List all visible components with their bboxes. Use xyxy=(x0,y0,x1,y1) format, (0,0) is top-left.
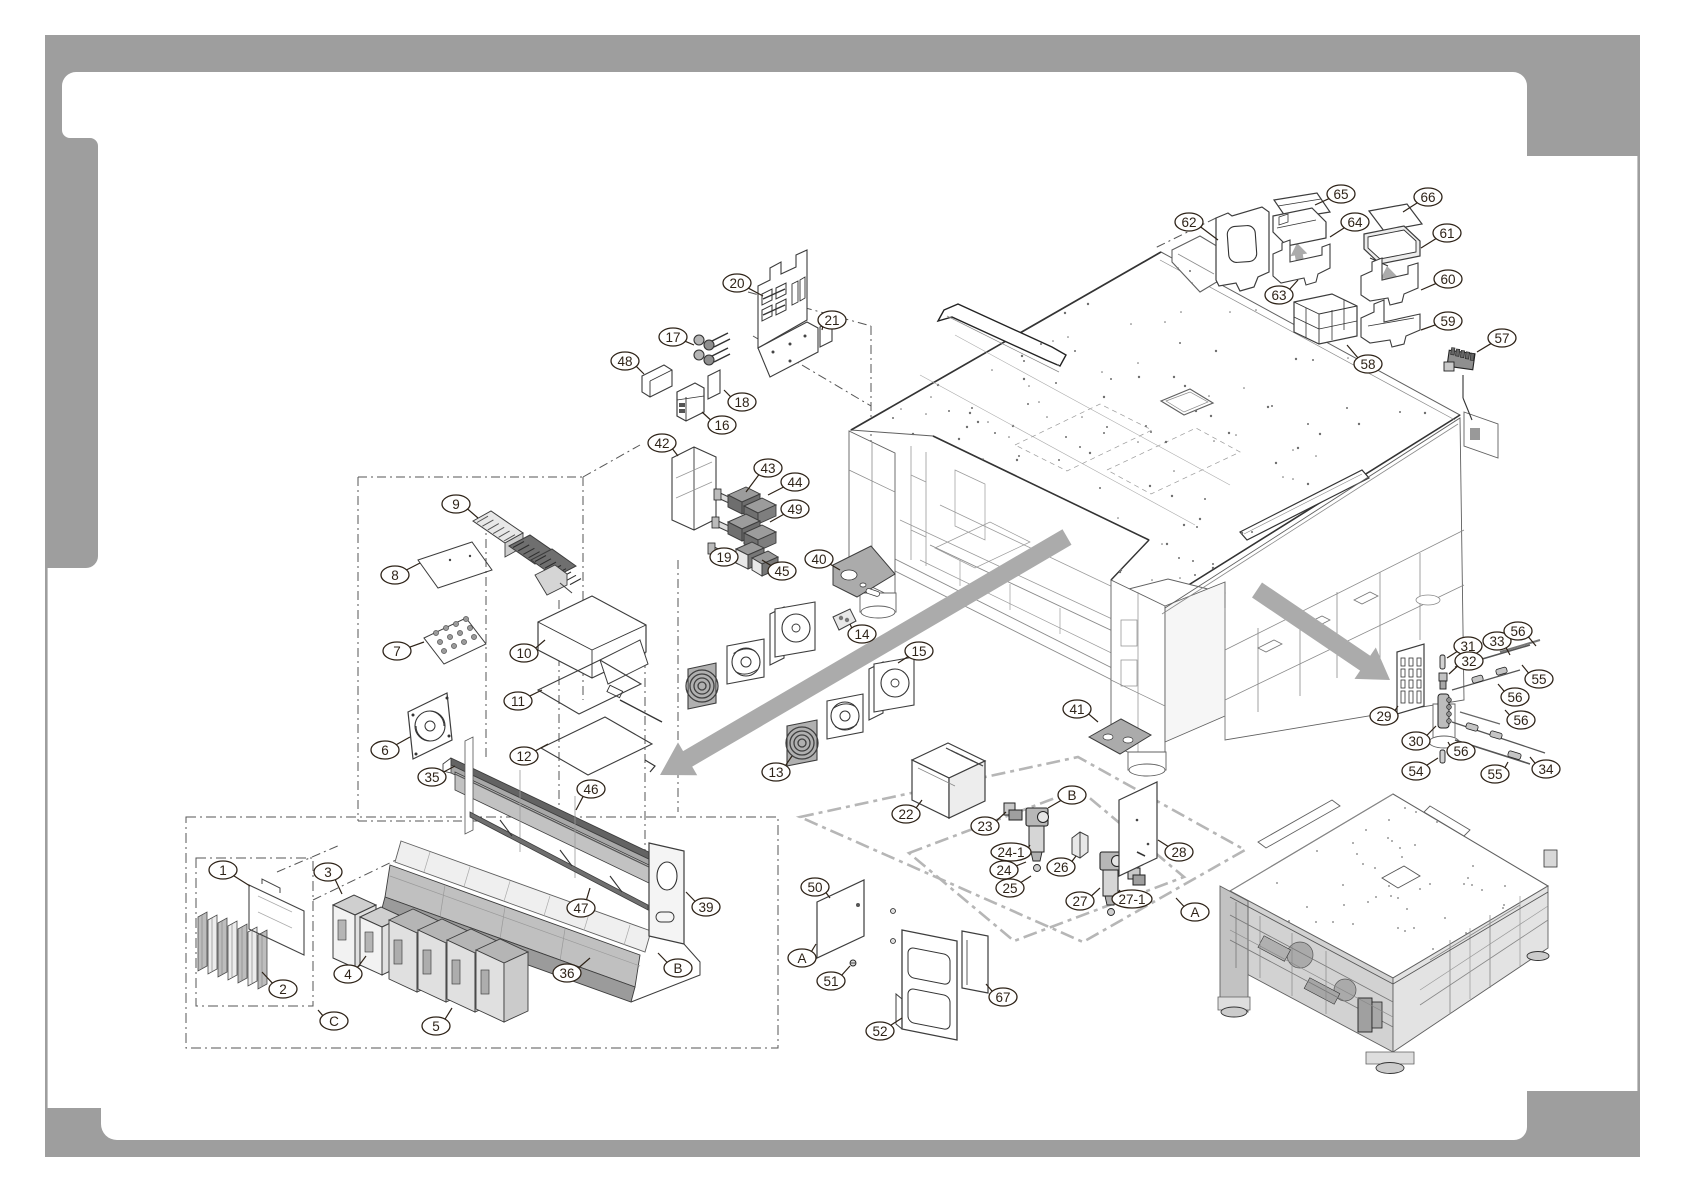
svg-text:62: 62 xyxy=(1181,215,1196,230)
svg-text:55: 55 xyxy=(1531,672,1546,687)
svg-text:11: 11 xyxy=(511,694,525,709)
svg-text:27: 27 xyxy=(1072,894,1087,909)
svg-text:43: 43 xyxy=(760,461,775,476)
svg-text:47: 47 xyxy=(573,901,588,916)
svg-text:39: 39 xyxy=(698,900,713,915)
svg-text:51: 51 xyxy=(823,974,838,989)
svg-text:2: 2 xyxy=(279,982,287,997)
svg-text:24-1: 24-1 xyxy=(997,845,1024,860)
svg-text:64: 64 xyxy=(1347,215,1363,230)
svg-text:56: 56 xyxy=(1453,744,1468,759)
svg-text:7: 7 xyxy=(393,644,401,659)
svg-text:56: 56 xyxy=(1513,713,1528,728)
svg-text:17: 17 xyxy=(665,330,680,345)
svg-text:61: 61 xyxy=(1439,226,1454,241)
svg-text:45: 45 xyxy=(774,564,789,579)
svg-text:25: 25 xyxy=(1002,881,1017,896)
svg-text:3: 3 xyxy=(324,865,332,880)
svg-text:15: 15 xyxy=(911,644,926,659)
svg-text:48: 48 xyxy=(617,354,632,369)
svg-text:23: 23 xyxy=(977,819,992,834)
svg-text:B: B xyxy=(673,961,682,976)
svg-text:6: 6 xyxy=(381,743,389,758)
svg-text:14: 14 xyxy=(854,627,870,642)
svg-text:54: 54 xyxy=(1408,764,1424,779)
svg-text:44: 44 xyxy=(787,475,803,490)
svg-text:A: A xyxy=(1190,905,1199,920)
svg-text:12: 12 xyxy=(516,749,531,764)
svg-text:66: 66 xyxy=(1420,190,1435,205)
svg-text:24: 24 xyxy=(996,863,1012,878)
svg-text:46: 46 xyxy=(583,782,598,797)
svg-text:50: 50 xyxy=(807,880,822,895)
svg-text:59: 59 xyxy=(1440,314,1455,329)
svg-text:13: 13 xyxy=(768,765,783,780)
svg-text:57: 57 xyxy=(1494,331,1509,346)
svg-text:18: 18 xyxy=(734,395,749,410)
svg-text:35: 35 xyxy=(424,770,439,785)
svg-text:56: 56 xyxy=(1510,624,1525,639)
svg-text:67: 67 xyxy=(995,990,1010,1005)
svg-text:16: 16 xyxy=(714,418,729,433)
svg-text:52: 52 xyxy=(872,1024,887,1039)
svg-text:55: 55 xyxy=(1487,767,1502,782)
svg-text:49: 49 xyxy=(787,502,802,517)
svg-text:C: C xyxy=(329,1014,339,1029)
svg-text:19: 19 xyxy=(716,550,731,565)
svg-text:56: 56 xyxy=(1507,690,1522,705)
svg-text:4: 4 xyxy=(344,967,352,982)
svg-text:A: A xyxy=(797,951,806,966)
svg-text:29: 29 xyxy=(1376,709,1391,724)
svg-text:32: 32 xyxy=(1461,654,1476,669)
svg-text:33: 33 xyxy=(1489,634,1504,649)
svg-text:8: 8 xyxy=(391,568,399,583)
svg-text:26: 26 xyxy=(1053,860,1068,875)
svg-text:42: 42 xyxy=(654,436,669,451)
svg-text:58: 58 xyxy=(1360,357,1375,372)
svg-text:65: 65 xyxy=(1333,187,1348,202)
svg-text:41: 41 xyxy=(1069,702,1084,717)
svg-text:5: 5 xyxy=(432,1019,440,1034)
svg-text:22: 22 xyxy=(898,807,913,822)
svg-text:60: 60 xyxy=(1440,272,1455,287)
svg-text:B: B xyxy=(1067,788,1076,803)
svg-text:27-1: 27-1 xyxy=(1118,892,1145,907)
svg-text:63: 63 xyxy=(1271,288,1286,303)
svg-text:10: 10 xyxy=(516,646,531,661)
svg-text:1: 1 xyxy=(219,863,227,878)
svg-text:30: 30 xyxy=(1408,734,1423,749)
svg-text:36: 36 xyxy=(559,966,574,981)
svg-text:34: 34 xyxy=(1538,762,1554,777)
svg-text:28: 28 xyxy=(1171,845,1186,860)
svg-text:21: 21 xyxy=(824,313,839,328)
svg-text:9: 9 xyxy=(452,497,460,512)
svg-text:20: 20 xyxy=(729,276,744,291)
svg-text:40: 40 xyxy=(811,552,826,567)
